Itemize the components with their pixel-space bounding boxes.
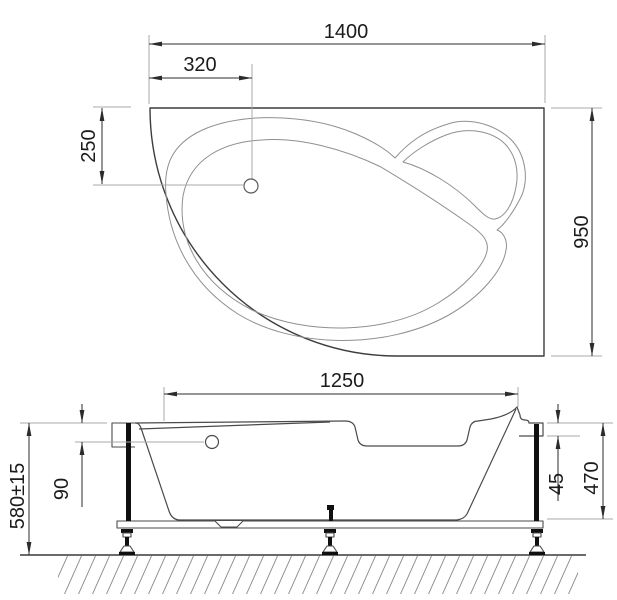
apron-panel-left: [126, 423, 131, 521]
dim-drain-depth: 250: [78, 108, 102, 184]
dim-total-height: 580±15: [7, 423, 29, 555]
tub-body-profile: [136, 409, 516, 520]
foot-middle: [322, 529, 338, 555]
foot-left: [119, 529, 135, 555]
dim-label-rim-length: 1250: [320, 370, 365, 392]
tub-outer-outline: [150, 108, 544, 356]
dim-label-overall-depth: 950: [571, 215, 593, 248]
dim-label-overall-width: 1400: [324, 21, 369, 43]
tub-rim-cap: [112, 423, 135, 447]
dim-label-panel-height: 470: [581, 461, 603, 494]
dim-label-drain-depth: 250: [78, 129, 100, 162]
dim-rim-thickness: 45: [546, 404, 568, 501]
dim-label-drain-offset: 320: [183, 54, 216, 76]
foot-right: [529, 529, 545, 555]
bathtub-technical-drawing: 1400 320 250 950: [0, 0, 617, 600]
ground-hatching: [58, 556, 578, 594]
drain-hole: [244, 179, 258, 193]
dim-label-total-height: 580±15: [7, 463, 29, 530]
dim-drain-offset: 320: [149, 54, 252, 78]
apron-panel-right: [534, 424, 539, 521]
top-view: 1400 320 250 950: [78, 21, 602, 356]
dim-overall-depth: 950: [571, 108, 593, 356]
dim-panel-height: 470: [581, 423, 603, 519]
drawing-svg: 1400 320 250 950: [0, 0, 617, 600]
dim-overall-width: 1400: [149, 21, 545, 44]
dim-overflow-height: 90: [51, 404, 82, 507]
dim-rim-length: 1250: [164, 370, 518, 394]
overflow-hole: [206, 436, 219, 449]
side-view: 1250 580±15 90 45 470: [7, 370, 613, 594]
dim-label-overflow-height: 90: [51, 478, 73, 500]
support-frame: [117, 521, 543, 528]
fixing-pin-middle: [327, 505, 334, 521]
dim-label-rim-thickness: 45: [546, 473, 568, 495]
